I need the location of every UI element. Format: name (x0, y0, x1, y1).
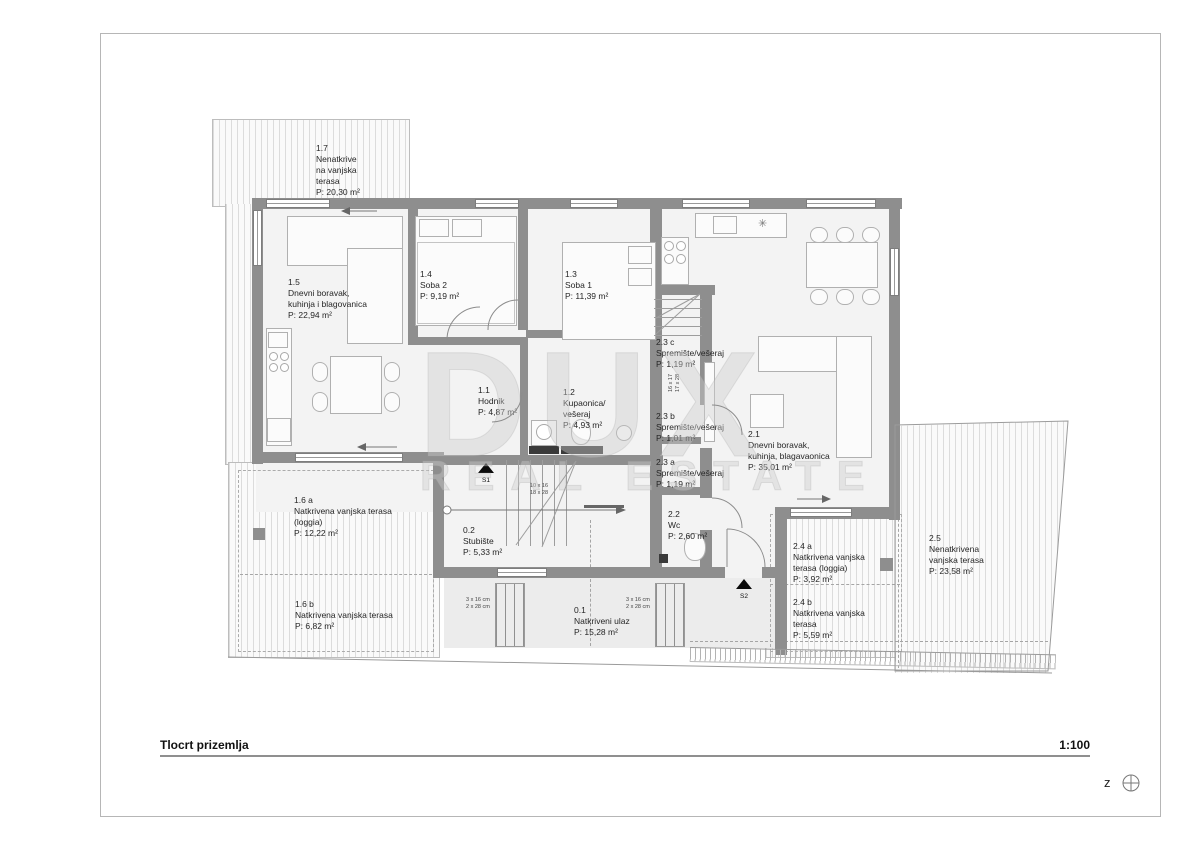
door-arc (492, 392, 522, 422)
exit-arrowhead (341, 207, 350, 215)
ground-line (228, 657, 1052, 673)
exit-arrowhead (822, 495, 831, 503)
exit-arrowhead (357, 443, 366, 451)
walkline-arrowhead (616, 506, 626, 514)
door-arc (727, 529, 765, 567)
door-arc (712, 498, 742, 528)
door-arc (712, 405, 742, 435)
linework-overlay (0, 0, 1200, 848)
walkline-start (443, 506, 451, 514)
door-arc (488, 300, 518, 330)
door-arc (447, 307, 480, 340)
stair-diagonal (542, 461, 576, 547)
stair-diagonal (516, 461, 576, 545)
floor-plan-sheet: ✳ S1 S2 16 x 17 17 x 28 10 x 16 18 x 28 … (0, 0, 1200, 848)
terrace-2-5-outline (895, 421, 1068, 671)
